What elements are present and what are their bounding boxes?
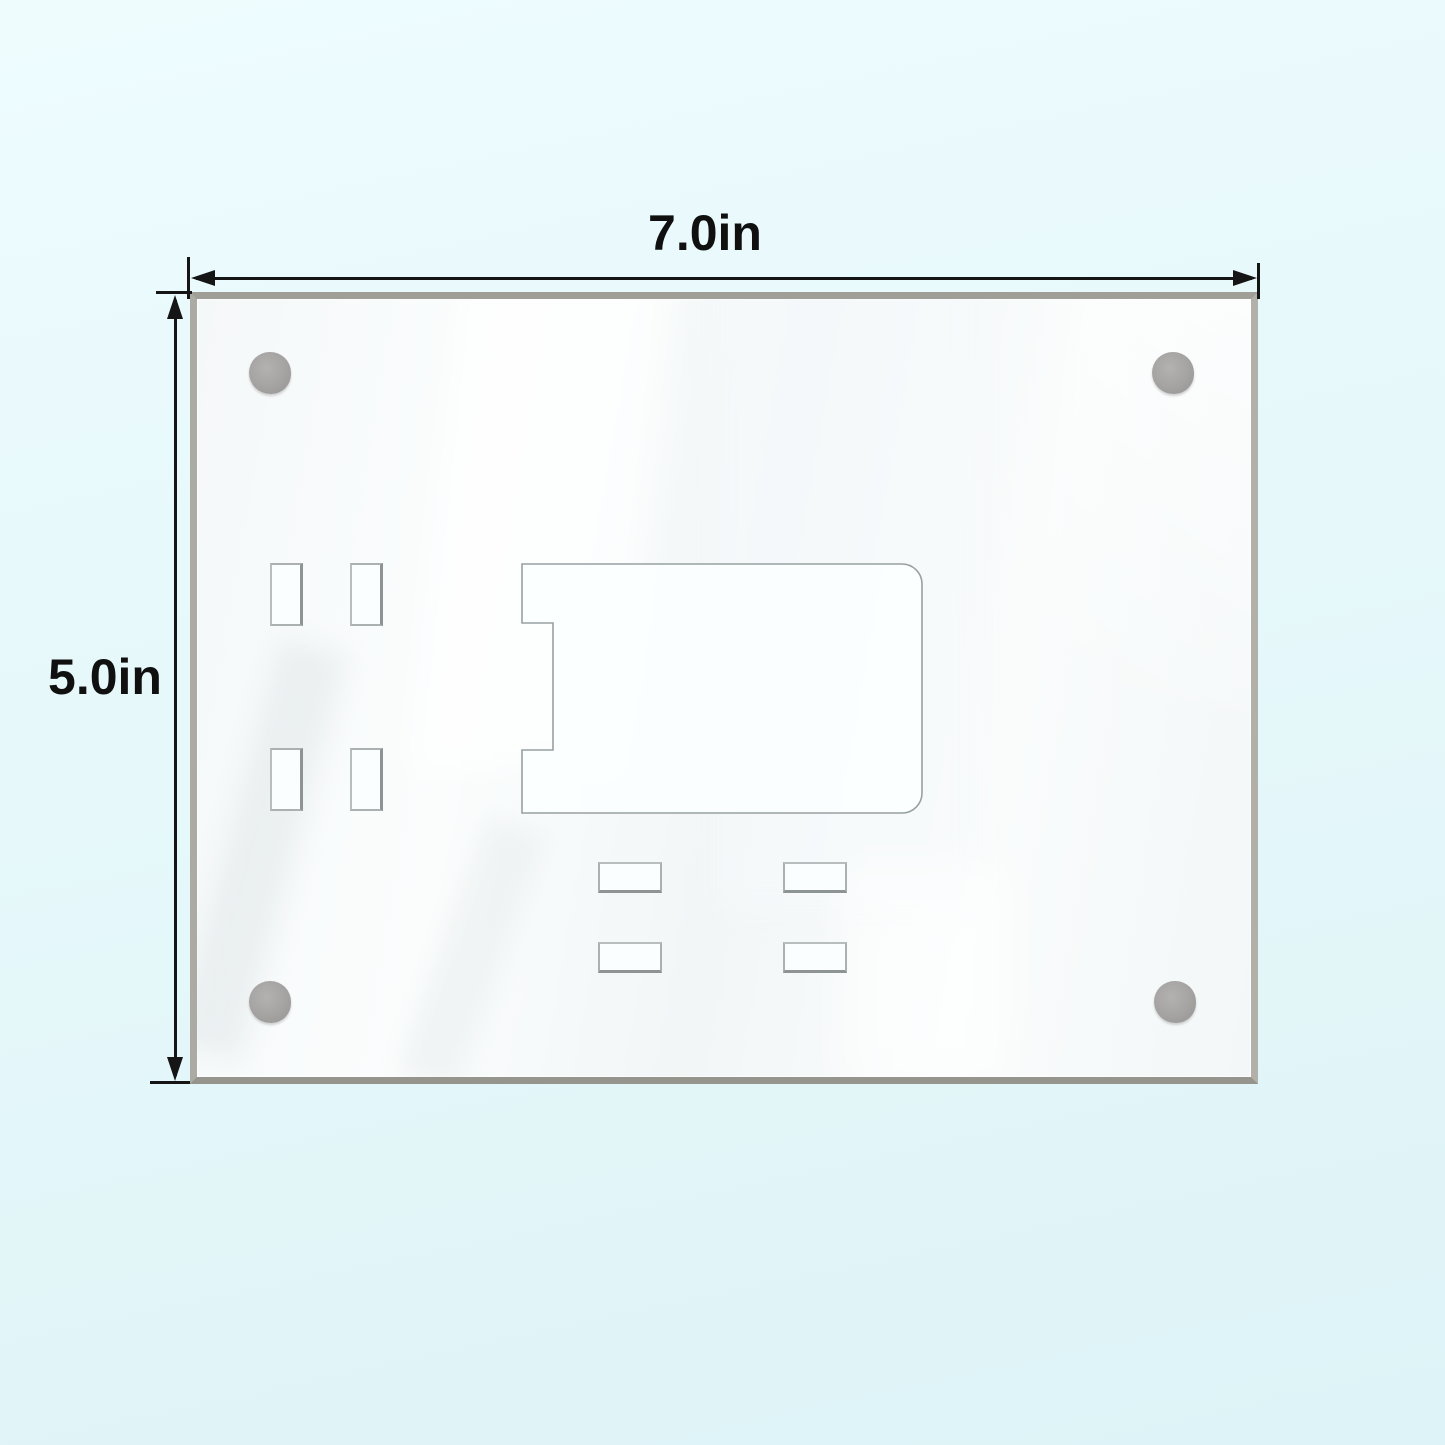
slot-horizontal-bottom-right: [783, 942, 847, 973]
height-extension-tick-bottom: [150, 1081, 190, 1084]
height-label: 5.0in: [30, 652, 180, 702]
slot-horizontal-bottom-left: [598, 942, 662, 973]
magnet-dot-top-right: [1152, 352, 1194, 394]
width-arrow-left: [191, 270, 215, 286]
product-dimension-diagram: 7.0in 5.0in: [0, 0, 1445, 1445]
slot-horizontal-top-right: [783, 862, 847, 893]
card-cutout: [197, 299, 1251, 1077]
slot-vertical-bottom-right: [350, 748, 383, 811]
acrylic-panel: [190, 292, 1258, 1084]
panel-surface: [197, 299, 1251, 1077]
slot-vertical-top-left: [270, 563, 303, 626]
slot-vertical-bottom-left: [270, 748, 303, 811]
magnet-dot-top-left: [249, 352, 291, 394]
magnet-dot-bottom-left: [249, 981, 291, 1023]
height-arrow-bottom: [167, 1057, 183, 1081]
width-arrow-right: [1233, 270, 1257, 286]
height-arrow-top: [167, 295, 183, 319]
magnet-dot-bottom-right: [1154, 981, 1196, 1023]
height-dimension-line: [174, 300, 177, 1076]
width-extension-tick-right: [1257, 263, 1260, 299]
slot-vertical-top-right: [350, 563, 383, 626]
width-dimension-line: [196, 277, 1252, 280]
width-label: 7.0in: [565, 208, 845, 258]
slot-horizontal-top-left: [598, 862, 662, 893]
height-extension-tick-top: [156, 291, 192, 294]
